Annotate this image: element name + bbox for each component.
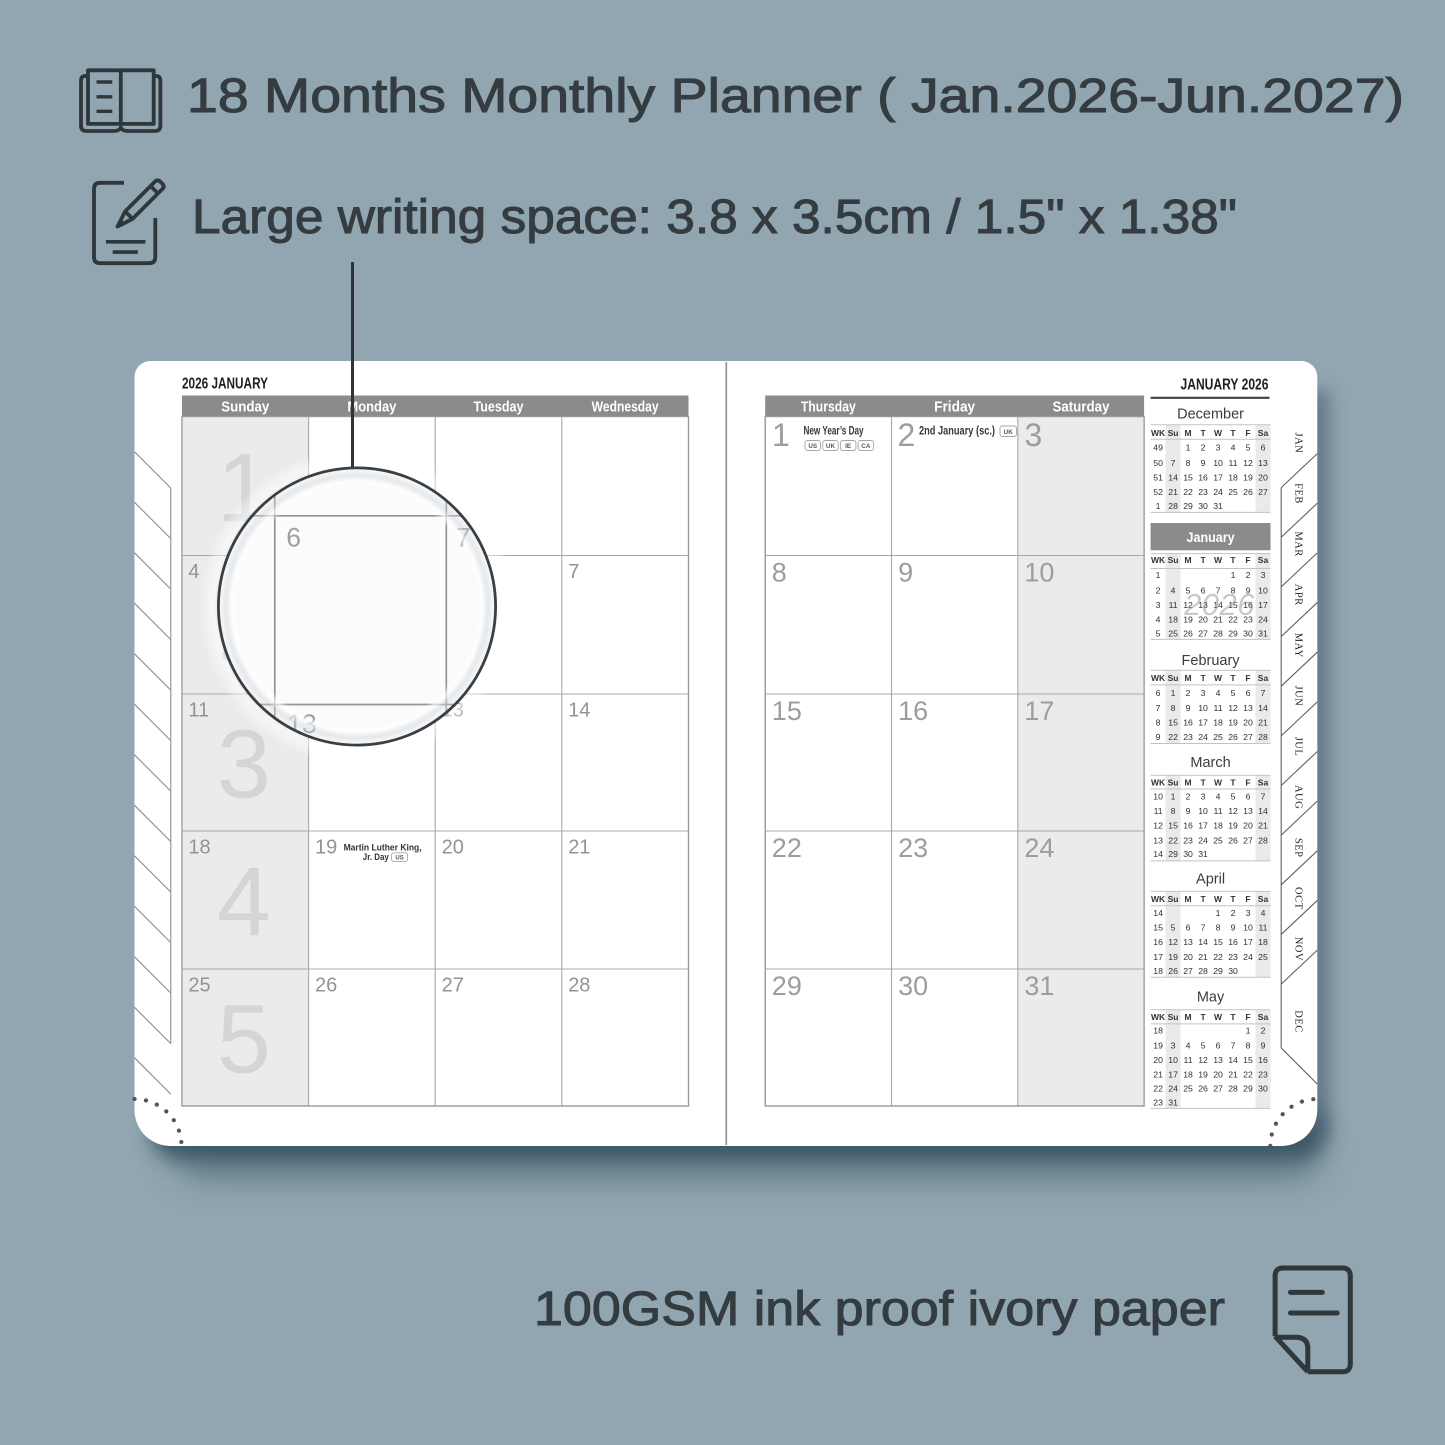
svg-text:23: 23 (898, 833, 928, 863)
svg-text:26: 26 (1228, 835, 1238, 845)
svg-text:17: 17 (1024, 696, 1054, 726)
svg-text:28: 28 (1213, 628, 1223, 638)
svg-text:WK: WK (1151, 673, 1166, 683)
svg-text:3: 3 (1025, 417, 1043, 453)
svg-text:T: T (1230, 1012, 1236, 1022)
svg-text:Su: Su (1168, 555, 1179, 565)
svg-text:9: 9 (1156, 732, 1161, 742)
svg-text:14: 14 (568, 700, 590, 722)
svg-text:30: 30 (898, 971, 928, 1001)
svg-text:7: 7 (1201, 923, 1206, 933)
svg-text:26: 26 (1228, 732, 1238, 742)
svg-text:21: 21 (1258, 718, 1268, 728)
svg-text:21: 21 (1168, 487, 1178, 497)
svg-text:18 Months Monthly Planner ( Ja: 18 Months Monthly Planner ( Jan.2026-Jun… (187, 69, 1404, 123)
svg-text:28: 28 (1168, 501, 1178, 511)
svg-text:13: 13 (1213, 1055, 1223, 1065)
svg-text:Su: Su (1168, 673, 1179, 683)
svg-text:11: 11 (188, 700, 209, 722)
svg-text:21: 21 (568, 837, 590, 859)
svg-text:6: 6 (1216, 1040, 1221, 1050)
svg-text:9: 9 (1231, 923, 1236, 933)
svg-text:22: 22 (1183, 487, 1193, 497)
svg-text:WK: WK (1151, 778, 1166, 788)
svg-text:12: 12 (1228, 806, 1238, 816)
svg-text:6: 6 (1246, 792, 1251, 802)
svg-text:19: 19 (1198, 1070, 1208, 1080)
svg-text:21: 21 (1198, 952, 1208, 962)
svg-text:25: 25 (1213, 835, 1223, 845)
svg-text:29: 29 (1183, 501, 1193, 511)
svg-text:15: 15 (1168, 821, 1178, 831)
svg-text:18: 18 (1228, 473, 1238, 483)
svg-text:27: 27 (1243, 732, 1253, 742)
svg-text:19: 19 (315, 837, 337, 859)
svg-text:8: 8 (1156, 718, 1161, 728)
svg-text:F: F (1245, 428, 1250, 438)
svg-text:31: 31 (1024, 971, 1054, 1001)
svg-text:12: 12 (1228, 703, 1238, 713)
svg-text:15: 15 (1213, 937, 1223, 947)
svg-text:3: 3 (1216, 443, 1221, 453)
svg-text:M: M (1185, 894, 1192, 904)
svg-text:7: 7 (1231, 1040, 1236, 1050)
svg-text:2: 2 (1186, 688, 1191, 698)
svg-text:31: 31 (1258, 628, 1268, 638)
svg-text:3: 3 (1201, 792, 1206, 802)
svg-text:WK: WK (1151, 894, 1166, 904)
svg-text:14: 14 (1153, 849, 1163, 859)
svg-text:M: M (1185, 555, 1192, 565)
svg-text:F: F (1245, 894, 1250, 904)
svg-text:22: 22 (772, 833, 802, 863)
svg-text:CA: CA (861, 443, 871, 450)
svg-text:25: 25 (188, 975, 210, 997)
svg-text:F: F (1245, 778, 1250, 788)
svg-text:9: 9 (1186, 703, 1191, 713)
svg-text:12: 12 (1243, 458, 1253, 468)
svg-text:WK: WK (1151, 428, 1166, 438)
svg-text:2026 JANUARY: 2026 JANUARY (182, 376, 269, 393)
svg-text:17: 17 (1153, 952, 1163, 962)
svg-text:17: 17 (1258, 600, 1268, 610)
svg-text:11: 11 (1154, 806, 1163, 816)
svg-text:20: 20 (1258, 473, 1268, 483)
svg-text:11: 11 (1214, 703, 1223, 713)
svg-text:20: 20 (1183, 952, 1193, 962)
svg-text:21: 21 (1153, 1070, 1163, 1080)
svg-text:27: 27 (1198, 628, 1208, 638)
svg-text:AUG: AUG (1293, 785, 1304, 809)
svg-text:Large writing space: 3.8 x 3.5: Large writing space: 3.8 x 3.5cm / 1.5" … (192, 190, 1237, 244)
svg-text:UK: UK (1004, 429, 1014, 436)
svg-text:27: 27 (442, 975, 464, 997)
svg-text:OCT: OCT (1293, 887, 1304, 910)
svg-text:20: 20 (1243, 821, 1253, 831)
svg-text:23: 23 (1183, 732, 1193, 742)
svg-text:26: 26 (315, 975, 337, 997)
svg-text:IE: IE (845, 443, 851, 450)
svg-text:3: 3 (1261, 570, 1266, 580)
svg-text:US: US (395, 856, 403, 862)
svg-text:21: 21 (1228, 1070, 1238, 1080)
svg-text:Thursday: Thursday (801, 399, 856, 415)
svg-text:1: 1 (1156, 570, 1161, 580)
svg-text:4: 4 (1231, 443, 1236, 453)
svg-text:11: 11 (1184, 1055, 1193, 1065)
svg-text:M: M (1185, 778, 1192, 788)
svg-text:8: 8 (1186, 458, 1191, 468)
svg-text:W: W (1214, 894, 1223, 904)
svg-text:18: 18 (188, 837, 210, 859)
svg-text:50: 50 (1153, 458, 1163, 468)
svg-text:W: W (1214, 428, 1223, 438)
svg-text:16: 16 (1258, 1055, 1268, 1065)
svg-text:100GSM ink proof ivory paper: 100GSM ink proof ivory paper (534, 1282, 1225, 1336)
svg-text:52: 52 (1153, 487, 1163, 497)
svg-text:24: 24 (1024, 833, 1054, 863)
svg-text:26: 26 (1243, 487, 1253, 497)
svg-text:29: 29 (1228, 628, 1238, 638)
svg-text:January: January (1187, 529, 1235, 545)
svg-text:1: 1 (1231, 570, 1236, 580)
svg-text:7: 7 (1261, 792, 1266, 802)
svg-text:12: 12 (1168, 937, 1178, 947)
svg-text:9: 9 (1201, 458, 1206, 468)
svg-text:7: 7 (1261, 688, 1266, 698)
svg-text:31: 31 (1168, 1097, 1178, 1107)
svg-text:10: 10 (1024, 558, 1054, 588)
svg-text:29: 29 (1213, 966, 1223, 976)
svg-text:4: 4 (188, 561, 199, 583)
svg-text:24: 24 (1213, 487, 1223, 497)
svg-text:3: 3 (1156, 600, 1161, 610)
svg-text:51: 51 (1153, 473, 1163, 483)
svg-text:26: 26 (1198, 1083, 1208, 1093)
svg-text:2: 2 (898, 417, 916, 453)
svg-text:11: 11 (1258, 923, 1267, 933)
svg-text:T: T (1230, 673, 1236, 683)
svg-text:16: 16 (898, 696, 928, 726)
svg-text:16: 16 (1228, 937, 1238, 947)
svg-text:21: 21 (1258, 821, 1268, 831)
svg-text:Sa: Sa (1258, 555, 1269, 565)
svg-text:15: 15 (1243, 1055, 1253, 1065)
svg-text:4: 4 (1186, 1040, 1191, 1050)
svg-text:1: 1 (1171, 792, 1176, 802)
svg-text:Friday: Friday (934, 399, 975, 415)
svg-text:MAR: MAR (1293, 531, 1304, 556)
svg-text:10: 10 (1258, 585, 1268, 595)
svg-text:26: 26 (1183, 628, 1193, 638)
svg-text:4: 4 (1156, 615, 1161, 625)
svg-text:16: 16 (1183, 821, 1193, 831)
svg-text:WK: WK (1151, 1012, 1166, 1022)
svg-text:25: 25 (1258, 952, 1268, 962)
svg-text:US: US (808, 443, 817, 450)
svg-text:1: 1 (772, 417, 790, 453)
svg-text:T: T (1200, 1012, 1206, 1022)
svg-text:9: 9 (1261, 1040, 1266, 1050)
svg-text:T: T (1200, 428, 1206, 438)
svg-text:15: 15 (1183, 473, 1193, 483)
svg-text:T: T (1200, 778, 1206, 788)
svg-text:2: 2 (1156, 585, 1161, 595)
svg-text:25: 25 (1228, 487, 1238, 497)
svg-text:12: 12 (1198, 1055, 1208, 1065)
svg-text:1: 1 (1171, 688, 1176, 698)
svg-text:18: 18 (1213, 718, 1223, 728)
svg-text:24: 24 (1198, 732, 1208, 742)
svg-text:28: 28 (568, 975, 590, 997)
svg-text:4: 4 (217, 847, 271, 956)
svg-text:16: 16 (1153, 937, 1163, 947)
svg-text:23: 23 (1258, 1070, 1268, 1080)
svg-text:30: 30 (1228, 966, 1238, 976)
svg-text:2: 2 (1231, 908, 1236, 918)
svg-text:T: T (1230, 428, 1236, 438)
svg-text:Su: Su (1168, 1012, 1179, 1022)
svg-text:3: 3 (1246, 908, 1251, 918)
svg-text:W: W (1214, 555, 1223, 565)
svg-text:8: 8 (1246, 1040, 1251, 1050)
svg-text:7: 7 (568, 561, 579, 583)
svg-text:24: 24 (1198, 835, 1208, 845)
svg-text:4: 4 (1171, 585, 1176, 595)
svg-text:JANUARY 2026: JANUARY 2026 (1181, 377, 1269, 394)
svg-text:3: 3 (1171, 1040, 1176, 1050)
svg-text:4: 4 (1216, 688, 1221, 698)
svg-text:5: 5 (1246, 443, 1251, 453)
svg-text:22: 22 (1243, 1070, 1253, 1080)
svg-text:8: 8 (772, 558, 787, 588)
svg-text:UK: UK (826, 443, 836, 450)
svg-text:10: 10 (1243, 923, 1253, 933)
svg-text:W: W (1214, 778, 1223, 788)
svg-text:1: 1 (1156, 501, 1161, 511)
svg-text:30: 30 (1258, 1083, 1268, 1093)
svg-text:1: 1 (1216, 908, 1221, 918)
svg-text:8: 8 (1216, 923, 1221, 933)
svg-text:4: 4 (1216, 792, 1221, 802)
svg-text:DEC: DEC (1293, 1010, 1304, 1033)
svg-text:19: 19 (1228, 718, 1238, 728)
svg-text:7: 7 (1171, 458, 1176, 468)
svg-text:17: 17 (1198, 718, 1208, 728)
svg-text:26: 26 (1168, 966, 1178, 976)
svg-text:11: 11 (1229, 458, 1238, 468)
svg-text:8: 8 (1171, 703, 1176, 713)
svg-text:1: 1 (1246, 1026, 1251, 1036)
svg-text:6: 6 (1261, 443, 1266, 453)
svg-text:Jr. Day: Jr. Day (363, 851, 390, 862)
svg-text:F: F (1245, 673, 1250, 683)
svg-text:5: 5 (1231, 688, 1236, 698)
svg-text:F: F (1245, 555, 1250, 565)
svg-text:6: 6 (1246, 688, 1251, 698)
svg-text:4: 4 (1261, 908, 1266, 918)
svg-text:SEP: SEP (1293, 838, 1304, 858)
svg-text:10: 10 (1153, 792, 1163, 802)
svg-text:16: 16 (1198, 473, 1208, 483)
svg-text:13: 13 (1258, 458, 1268, 468)
svg-text:30: 30 (1243, 628, 1253, 638)
svg-text:11: 11 (1169, 600, 1178, 610)
svg-text:28: 28 (1198, 966, 1208, 976)
svg-text:JUL: JUL (1293, 737, 1304, 757)
svg-text:10: 10 (1168, 1055, 1178, 1065)
svg-text:20: 20 (1213, 1070, 1223, 1080)
svg-text:7: 7 (1156, 703, 1161, 713)
svg-text:3: 3 (1201, 688, 1206, 698)
svg-text:5: 5 (217, 985, 271, 1094)
svg-text:M: M (1185, 1012, 1192, 1022)
svg-text:9: 9 (1186, 806, 1191, 816)
svg-text:May: May (1197, 990, 1225, 1006)
svg-text:23: 23 (1228, 952, 1238, 962)
svg-text:F: F (1245, 1012, 1250, 1022)
svg-text:29: 29 (772, 971, 802, 1001)
svg-text:19: 19 (1168, 952, 1178, 962)
svg-text:5: 5 (1231, 792, 1236, 802)
svg-text:T: T (1200, 894, 1206, 904)
svg-text:29: 29 (1243, 1083, 1253, 1093)
svg-text:19: 19 (1153, 1040, 1163, 1050)
svg-text:28: 28 (1258, 835, 1268, 845)
svg-text:T: T (1200, 673, 1206, 683)
svg-text:29: 29 (1168, 849, 1178, 859)
svg-text:18: 18 (1153, 966, 1163, 976)
svg-text:14: 14 (1168, 473, 1178, 483)
svg-text:13: 13 (1153, 835, 1163, 845)
svg-text:6: 6 (1156, 688, 1161, 698)
svg-text:Su: Su (1168, 428, 1179, 438)
svg-text:2026: 2026 (1183, 587, 1255, 622)
svg-text:Tuesday: Tuesday (474, 399, 524, 415)
svg-text:18: 18 (1213, 821, 1223, 831)
svg-text:8: 8 (1171, 806, 1176, 816)
svg-text:20: 20 (1153, 1055, 1163, 1065)
svg-text:24: 24 (1168, 1083, 1178, 1093)
svg-text:14: 14 (1153, 908, 1163, 918)
svg-text:T: T (1230, 778, 1236, 788)
svg-text:Saturday: Saturday (1052, 399, 1109, 415)
svg-text:Sa: Sa (1258, 673, 1269, 683)
svg-text:Sa: Sa (1258, 428, 1269, 438)
svg-text:15: 15 (1168, 718, 1178, 728)
svg-text:20: 20 (442, 837, 464, 859)
svg-text:15: 15 (772, 696, 802, 726)
svg-text:12: 12 (1153, 821, 1163, 831)
svg-text:M: M (1185, 428, 1192, 438)
svg-text:New Year’s Day: New Year’s Day (804, 426, 864, 438)
svg-text:30: 30 (1183, 849, 1193, 859)
svg-text:14: 14 (1228, 1055, 1238, 1065)
svg-text:13: 13 (1243, 703, 1253, 713)
svg-text:28: 28 (1258, 732, 1268, 742)
svg-text:T: T (1230, 555, 1236, 565)
svg-text:2: 2 (1186, 792, 1191, 802)
svg-text:17: 17 (1198, 821, 1208, 831)
svg-text:Sa: Sa (1258, 894, 1269, 904)
svg-text:18: 18 (1168, 615, 1178, 625)
svg-text:W: W (1214, 1012, 1223, 1022)
svg-text:22: 22 (1153, 1083, 1163, 1093)
svg-text:JAN: JAN (1293, 433, 1304, 454)
svg-text:24: 24 (1258, 615, 1268, 625)
svg-text:5: 5 (1201, 1040, 1206, 1050)
svg-text:1: 1 (1186, 443, 1191, 453)
svg-text:9: 9 (898, 558, 913, 588)
svg-text:Sa: Sa (1258, 778, 1269, 788)
svg-text:19: 19 (1243, 473, 1253, 483)
svg-text:22: 22 (1168, 835, 1178, 845)
svg-text:18: 18 (1258, 937, 1268, 947)
svg-text:Su: Su (1168, 894, 1179, 904)
svg-text:13: 13 (1243, 806, 1253, 816)
svg-text:December: December (1177, 406, 1244, 422)
svg-text:Monday: Monday (347, 399, 396, 415)
svg-text:13: 13 (1183, 937, 1193, 947)
svg-text:16: 16 (1183, 718, 1193, 728)
svg-text:24: 24 (1243, 952, 1253, 962)
svg-text:20: 20 (1243, 718, 1253, 728)
svg-text:27: 27 (1183, 966, 1193, 976)
svg-text:Su: Su (1168, 778, 1179, 788)
svg-text:MAY: MAY (1293, 633, 1304, 658)
svg-text:23: 23 (1198, 487, 1208, 497)
svg-text:10: 10 (1213, 458, 1223, 468)
svg-text:2nd January (sc.): 2nd January (sc.) (919, 426, 995, 438)
svg-text:10: 10 (1198, 703, 1208, 713)
svg-text:10: 10 (1198, 806, 1208, 816)
svg-text:5: 5 (1156, 628, 1161, 638)
svg-text:2: 2 (1261, 1026, 1266, 1036)
svg-text:18: 18 (1153, 1026, 1163, 1036)
svg-text:23: 23 (1183, 835, 1193, 845)
svg-text:25: 25 (1213, 732, 1223, 742)
svg-text:2: 2 (1246, 570, 1251, 580)
svg-text:17: 17 (1243, 937, 1253, 947)
svg-text:31: 31 (1198, 849, 1208, 859)
svg-text:JUN: JUN (1293, 686, 1304, 707)
svg-text:Sa: Sa (1258, 1012, 1269, 1022)
svg-text:14: 14 (1258, 703, 1268, 713)
svg-text:22: 22 (1213, 952, 1223, 962)
svg-text:T: T (1230, 894, 1236, 904)
svg-text:23: 23 (1153, 1097, 1163, 1107)
svg-text:17: 17 (1168, 1070, 1178, 1080)
svg-text:2: 2 (1201, 443, 1206, 453)
svg-text:27: 27 (1213, 1083, 1223, 1093)
svg-text:28: 28 (1228, 1083, 1238, 1093)
svg-text:27: 27 (1258, 487, 1268, 497)
svg-text:M: M (1185, 673, 1192, 683)
svg-text:W: W (1214, 673, 1223, 683)
svg-text:March: March (1190, 755, 1230, 771)
svg-text:NOV: NOV (1293, 937, 1304, 961)
svg-text:11: 11 (1214, 806, 1223, 816)
svg-text:31: 31 (1213, 501, 1223, 511)
svg-text:15: 15 (1153, 923, 1163, 933)
svg-text:6: 6 (1186, 923, 1191, 933)
svg-text:14: 14 (1258, 806, 1268, 816)
svg-text:Sunday: Sunday (221, 399, 269, 415)
svg-text:WK: WK (1151, 555, 1166, 565)
svg-text:APR: APR (1293, 584, 1304, 606)
svg-text:18: 18 (1183, 1070, 1193, 1080)
svg-text:February: February (1182, 653, 1241, 669)
